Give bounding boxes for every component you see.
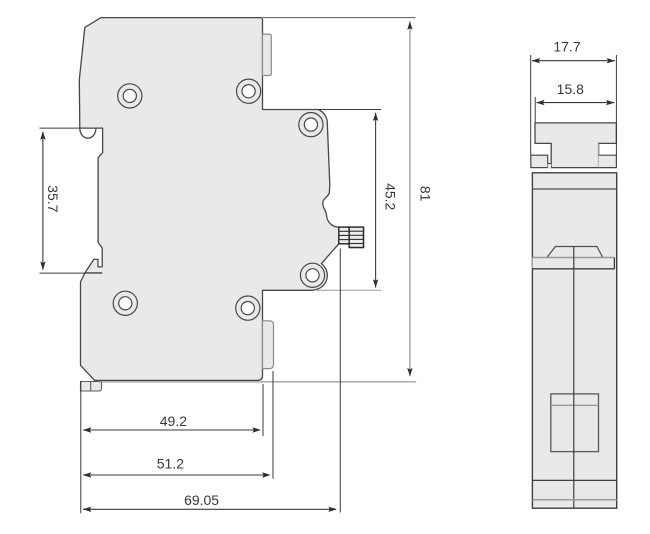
svg-text:69.05: 69.05 xyxy=(184,492,219,508)
svg-text:17.7: 17.7 xyxy=(553,39,580,55)
svg-text:35.7: 35.7 xyxy=(45,185,61,212)
svg-text:81: 81 xyxy=(417,186,433,202)
svg-text:49.2: 49.2 xyxy=(160,413,187,429)
svg-text:15.8: 15.8 xyxy=(557,81,584,97)
svg-text:45.2: 45.2 xyxy=(382,183,398,210)
svg-text:51.2: 51.2 xyxy=(157,456,184,472)
